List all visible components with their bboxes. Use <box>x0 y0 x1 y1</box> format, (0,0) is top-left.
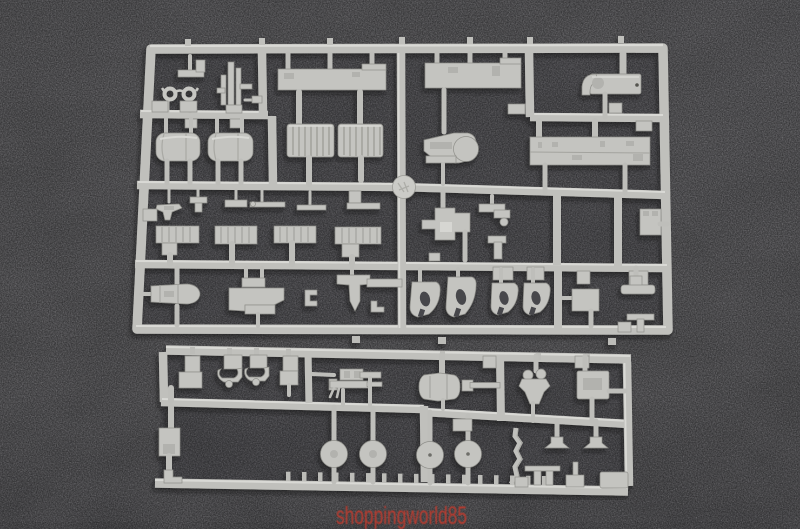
svg-text:shoppingworld85: shoppingworld85 <box>336 502 467 529</box>
